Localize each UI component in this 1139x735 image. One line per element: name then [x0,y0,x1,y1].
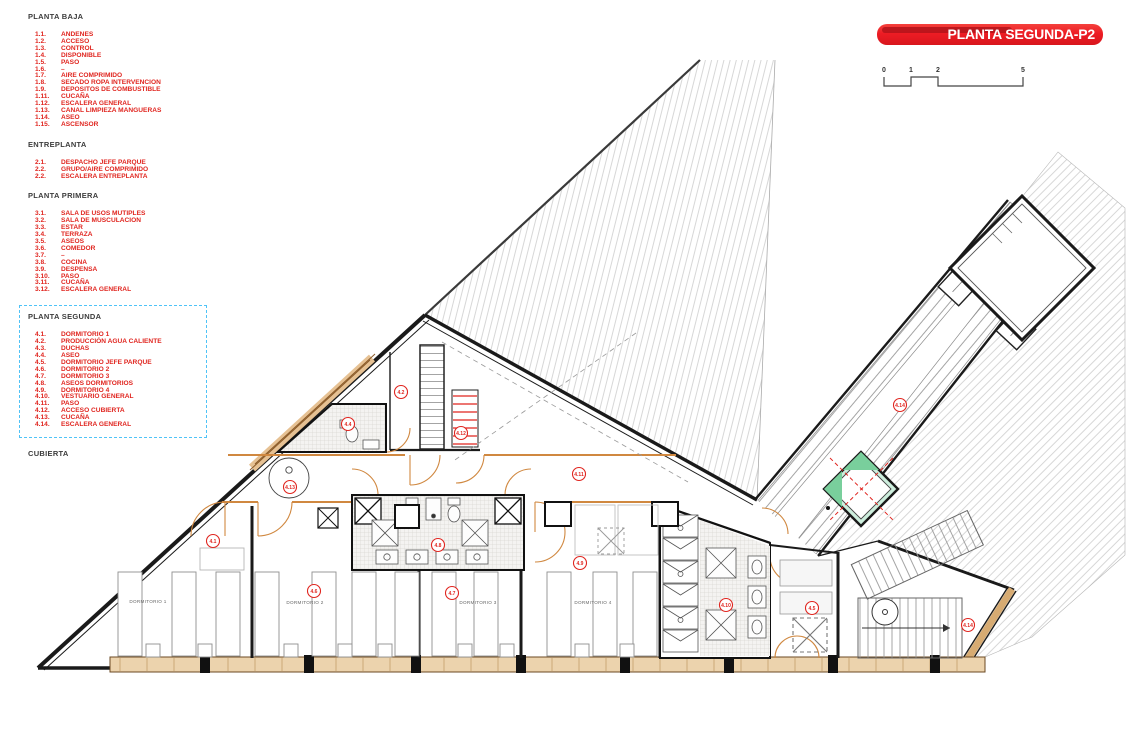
room-label: DORMITORIO 2 [286,600,323,605]
room-number-bubble: 4.1 [207,535,220,548]
svg-text:4.11: 4.11 [574,472,584,478]
room-label: DORMITORIO 1 [129,599,166,604]
svg-text:4.12: 4.12 [456,431,466,437]
svg-text:4.13: 4.13 [285,485,295,491]
svg-text:4.4: 4.4 [345,422,352,428]
svg-text:4.9: 4.9 [577,561,584,567]
svg-text:4.5: 4.5 [809,606,816,612]
svg-text:4.14: 4.14 [895,403,905,409]
room-number-bubble: 4.12 [455,427,468,440]
room-number-bubble: 4.11 [573,468,586,481]
scale-label: 5 [1021,67,1025,74]
room-number-bubble: 4.14 [894,399,907,412]
central-bath-core [352,495,524,570]
room-number-bubble: 4.4 [342,418,355,431]
room-number-bubble: 4.2 [395,386,408,399]
room-number-bubble: 4.10 [720,599,733,612]
room-number-bubble: 4.9 [574,557,587,570]
room-number-bubble: 4.7 [446,587,459,600]
room-label: DORMITORIO 3 [459,600,496,605]
svg-text:4.2: 4.2 [398,390,405,396]
room-number-bubble: 4.6 [308,585,321,598]
room-number-bubble: 4.14 [962,619,975,632]
room-label: DORMITORIO 4 [574,600,611,605]
room-number-bubble: 4.8 [432,539,445,552]
window-band [110,655,985,673]
scale-bar: 0 1 2 5 [882,67,1025,86]
drawing-sheet: PLANTA BAJA1.1.ANDENES1.2.ACCESO1.3.CONT… [0,0,1139,735]
svg-text:4.6: 4.6 [311,589,318,595]
room-number-bubble: 4.13 [284,481,297,494]
scale-label: 1 [909,67,913,74]
svg-text:4.1: 4.1 [210,539,217,545]
scale-label: 0 [882,67,886,74]
svg-text:4.14: 4.14 [963,623,973,629]
svg-text:4.10: 4.10 [721,603,731,609]
floor-plan-svg: 0 1 2 5 DORMITORIO 1DORMITORIO 2DORMITOR… [0,0,1139,735]
room-number-bubble: 4.5 [806,602,819,615]
svg-text:4.7: 4.7 [449,591,456,597]
svg-text:4.8: 4.8 [435,543,442,549]
scale-label: 2 [936,67,940,74]
